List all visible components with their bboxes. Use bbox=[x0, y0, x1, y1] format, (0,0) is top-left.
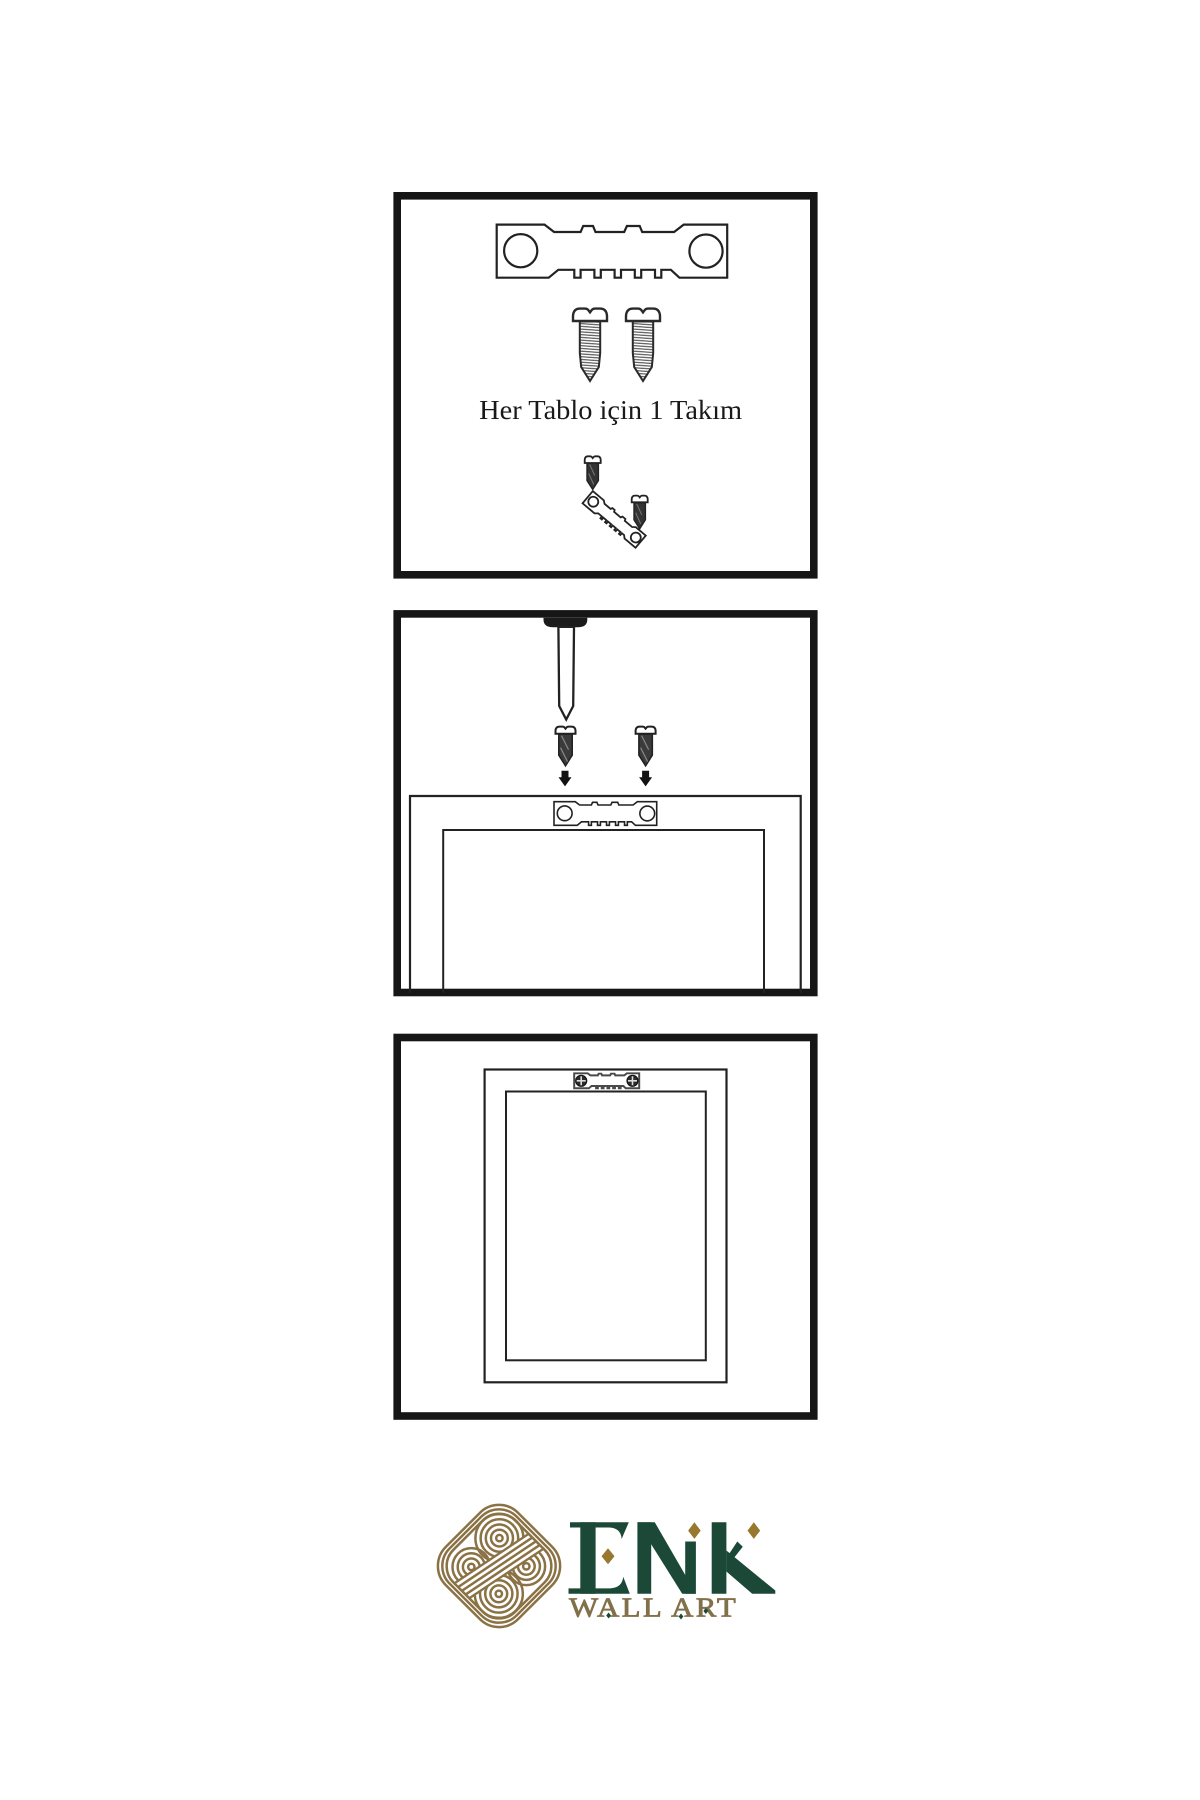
svg-text:Her Tablo için 1 Takım: Her Tablo için 1 Takım bbox=[479, 395, 742, 425]
svg-text:WALL ART: WALL ART bbox=[569, 1593, 738, 1623]
